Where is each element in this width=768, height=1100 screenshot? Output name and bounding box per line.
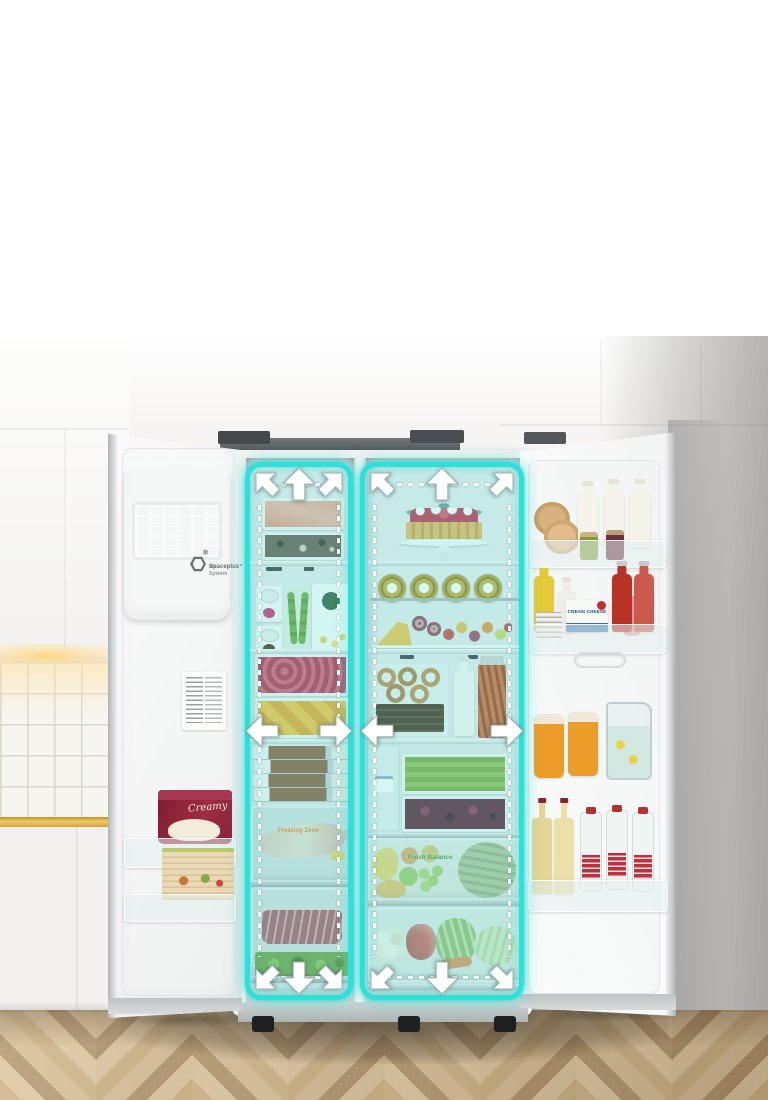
- arrow-up-icon: [425, 467, 459, 501]
- snack-box: [162, 848, 234, 900]
- door-bin-front: [124, 894, 236, 922]
- cream-cheese-label: CREAM CHEESE: [567, 609, 607, 614]
- arrow-up-left-icon: [245, 462, 287, 504]
- door-bottom-cap: [520, 994, 676, 1010]
- ice-cream-brand-text: Creamy: [187, 800, 227, 814]
- door-steel-edge: [108, 432, 117, 1018]
- arrow-right-icon: [490, 714, 524, 748]
- caster-wheel: [252, 1016, 274, 1032]
- snowflake-icon: ❄: [202, 549, 209, 557]
- backsplash-tiles: [0, 662, 118, 818]
- arrow-left-icon: [245, 714, 279, 748]
- door-bin-front: [530, 624, 666, 654]
- caster-wheel: [494, 1016, 516, 1032]
- arrow-up-left-icon: [360, 462, 402, 504]
- arrow-down-icon: [425, 961, 459, 995]
- arrow-right-icon: [319, 714, 353, 748]
- spaceplus-logo: ❄ Spaceplus™ Ice System: [190, 544, 246, 584]
- arrow-down-left-icon: [360, 958, 402, 1000]
- lemon-water-pitcher: [606, 702, 652, 780]
- left-freezer-door: ❄ Spaceplus™ Ice System Creamy: [108, 432, 242, 1018]
- wall-shadow-edge: [668, 420, 728, 1012]
- arrow-up-right-icon: [311, 462, 353, 504]
- energy-info-sticker: [182, 672, 226, 730]
- backsplash-gold-stripe: [0, 817, 118, 827]
- fridge-kick-plate: [238, 1002, 528, 1022]
- orange-juice-jug: [534, 714, 564, 778]
- orange-juice-jug: [568, 712, 598, 776]
- freezer-space-zone: [245, 462, 353, 1000]
- arrow-down-left-icon: [245, 958, 287, 1000]
- kitchen-product-scene: Freezing Zone Fresh Balance: [0, 0, 768, 1100]
- left-door-hinge: [218, 431, 270, 444]
- right-door-hinge: [410, 430, 464, 443]
- lower-cabinet: [0, 827, 118, 1012]
- door-handle-recess: [574, 652, 626, 668]
- caster-wheel: [398, 1016, 420, 1032]
- right-door-top-hinge: [524, 432, 566, 444]
- arrow-up-right-icon: [482, 462, 524, 504]
- ice-cream-tub: Creamy: [158, 790, 232, 844]
- door-steel-edge: [666, 428, 676, 1016]
- arrow-down-right-icon: [482, 958, 524, 1000]
- door-bin-front: [528, 880, 668, 912]
- fresh-food-space-zone: [360, 462, 524, 1000]
- arrow-down-right-icon: [311, 958, 353, 1000]
- sparkling-water-bottle: [606, 810, 628, 890]
- right-fridge-door: CREAM CHEESE: [520, 428, 676, 1016]
- arrow-left-icon: [360, 714, 394, 748]
- spaceplus-hexagon-icon: ❄: [190, 556, 206, 572]
